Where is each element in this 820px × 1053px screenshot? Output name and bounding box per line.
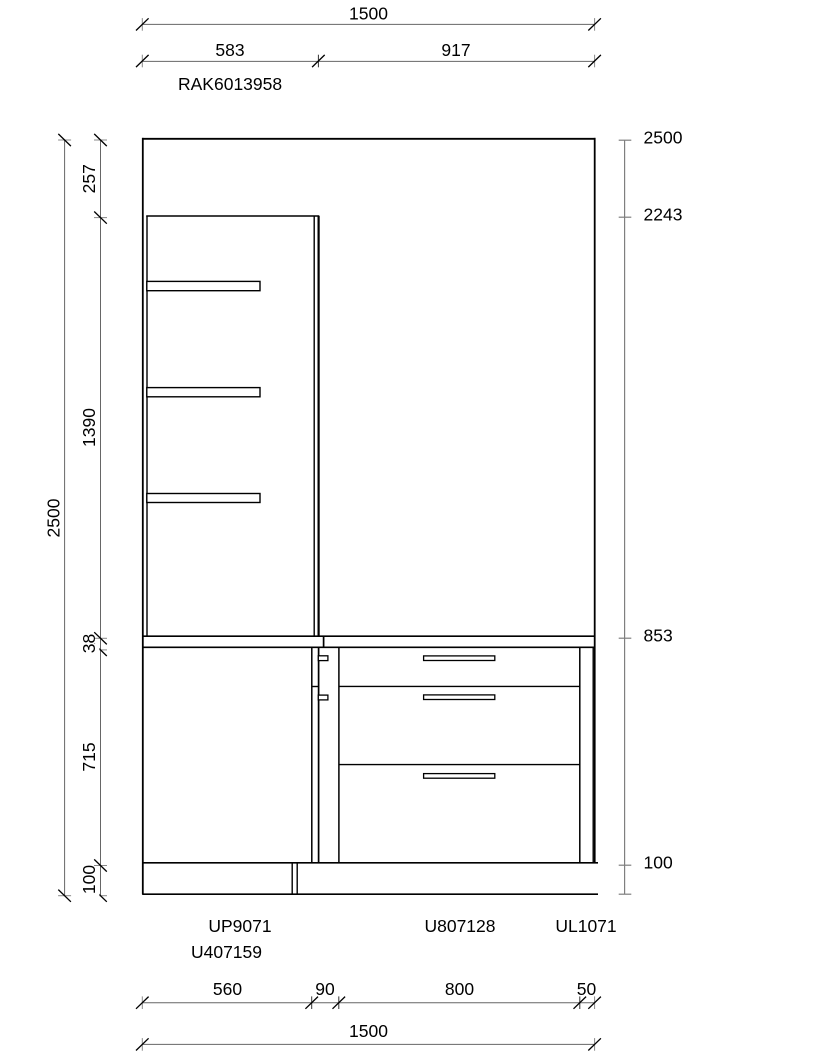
svg-text:U807128: U807128: [424, 916, 495, 936]
svg-text:100: 100: [79, 865, 99, 894]
svg-text:2500: 2500: [644, 128, 683, 148]
svg-text:917: 917: [441, 40, 470, 60]
svg-text:560: 560: [213, 979, 242, 999]
svg-text:50: 50: [577, 979, 597, 999]
svg-text:1390: 1390: [79, 408, 99, 447]
svg-text:853: 853: [644, 626, 673, 646]
svg-text:715: 715: [79, 742, 99, 771]
svg-text:2243: 2243: [644, 205, 683, 225]
svg-text:2500: 2500: [43, 498, 63, 537]
svg-text:U407159: U407159: [191, 942, 262, 962]
svg-text:RAK6013958: RAK6013958: [178, 74, 282, 94]
svg-text:100: 100: [644, 853, 673, 873]
svg-text:257: 257: [79, 164, 99, 193]
svg-text:1500: 1500: [349, 1021, 388, 1041]
svg-text:583: 583: [215, 40, 244, 60]
svg-text:UL1071: UL1071: [555, 916, 616, 936]
svg-text:90: 90: [315, 979, 335, 999]
svg-text:800: 800: [445, 979, 474, 999]
svg-text:38: 38: [79, 634, 99, 653]
svg-text:1500: 1500: [349, 4, 388, 24]
svg-text:UP9071: UP9071: [208, 916, 271, 936]
